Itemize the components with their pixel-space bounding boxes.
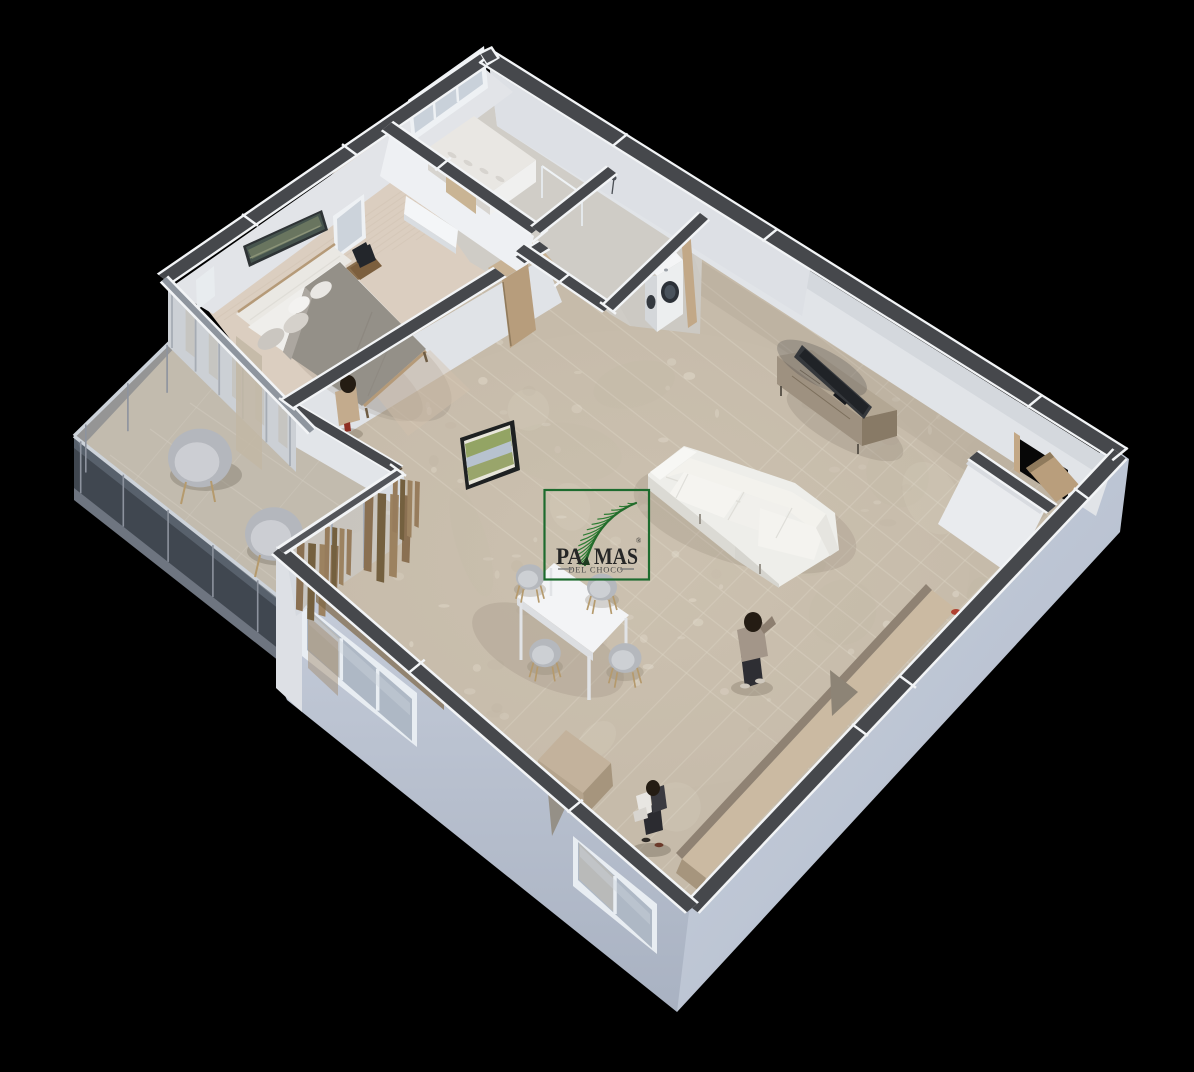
svg-text:DEL CHOCO: DEL CHOCO	[568, 565, 623, 575]
svg-text:®: ®	[636, 537, 642, 545]
